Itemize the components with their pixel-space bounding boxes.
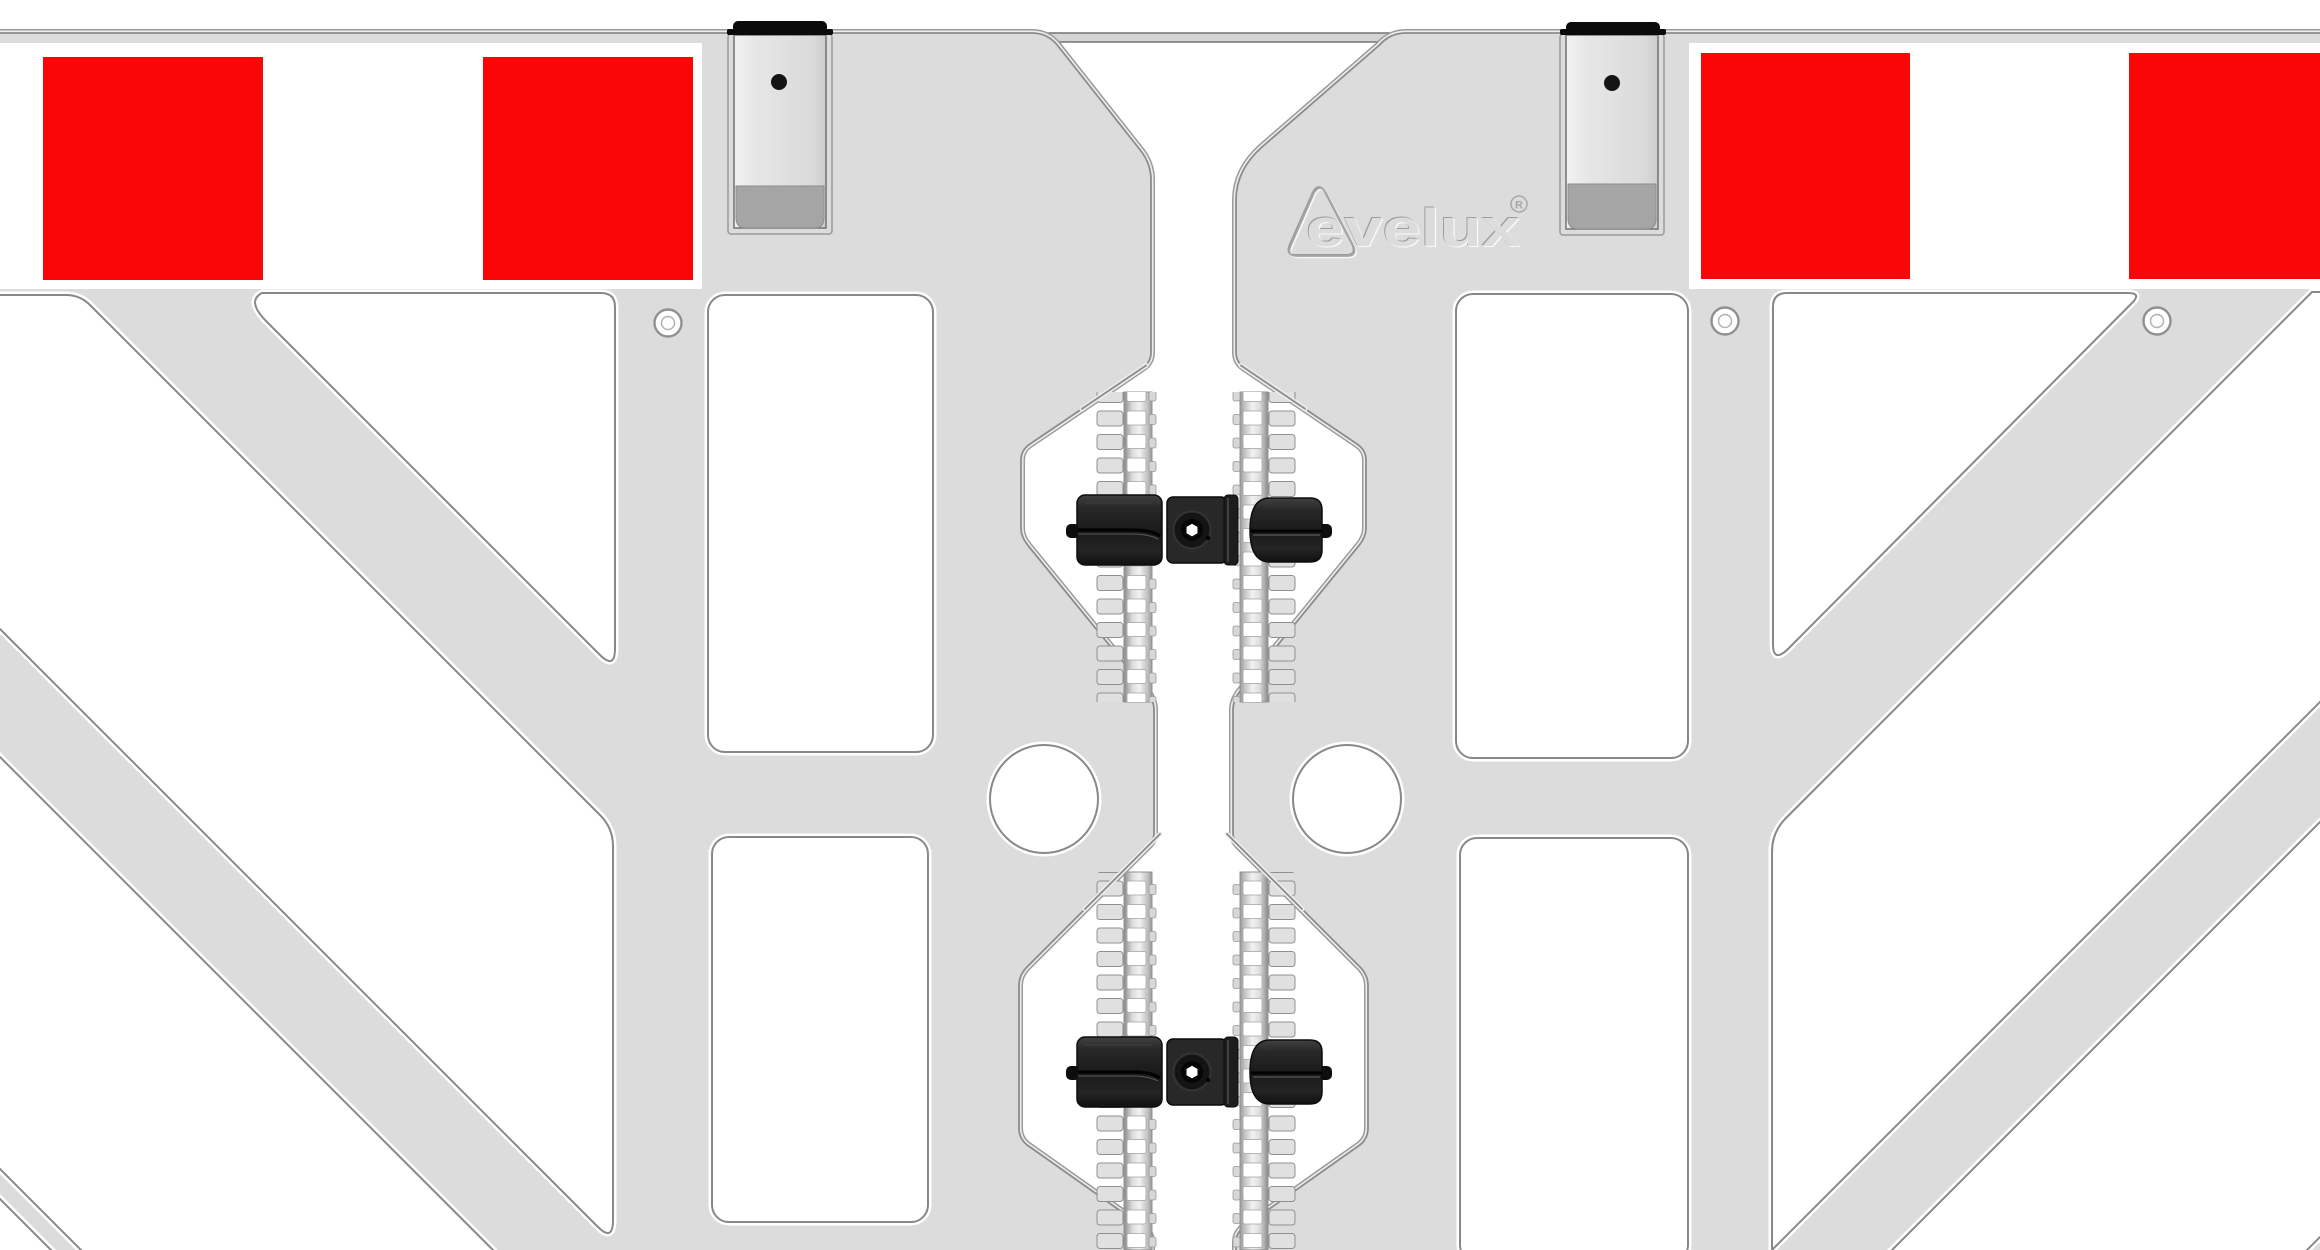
svg-text:R: R [1515,200,1523,212]
svg-text:evelux: evelux [1306,199,1521,258]
